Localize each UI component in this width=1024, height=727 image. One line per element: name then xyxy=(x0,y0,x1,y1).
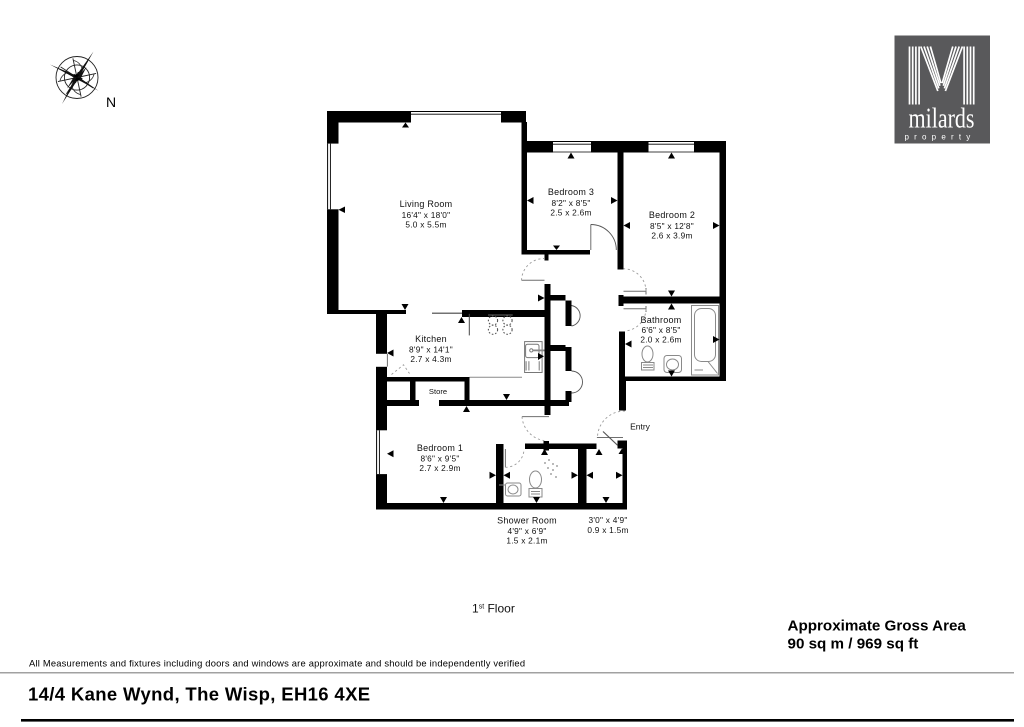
svg-text:2.7 x 4.3m: 2.7 x 4.3m xyxy=(410,354,451,364)
svg-text:2.0 x 2.6m: 2.0 x 2.6m xyxy=(640,335,681,345)
svg-text:Entry: Entry xyxy=(630,422,651,432)
svg-text:8'2" x 8'5": 8'2" x 8'5" xyxy=(551,198,590,208)
svg-text:1st Floor: 1st Floor xyxy=(472,602,515,616)
svg-text:Approximate Gross Area: Approximate Gross Area xyxy=(788,618,967,635)
svg-text:N: N xyxy=(106,94,116,110)
svg-text:Living Room: Living Room xyxy=(400,199,453,209)
svg-text:2.6 x 3.9m: 2.6 x 3.9m xyxy=(651,231,692,241)
svg-text:8'6" x 9'5": 8'6" x 9'5" xyxy=(420,454,459,464)
svg-text:All Measurements and fixtures: All Measurements and fixtures including … xyxy=(29,658,525,669)
svg-text:16'4" x 18'0": 16'4" x 18'0" xyxy=(402,210,451,220)
svg-text:Bathroom: Bathroom xyxy=(640,315,681,325)
svg-text:Store: Store xyxy=(429,387,447,396)
svg-text:90 sq m / 969 sq ft: 90 sq m / 969 sq ft xyxy=(788,635,919,652)
svg-text:0.9 x 1.5m: 0.9 x 1.5m xyxy=(587,525,628,535)
svg-text:5.0 x 5.5m: 5.0 x 5.5m xyxy=(405,220,446,230)
svg-text:4'9" x 6'9": 4'9" x 6'9" xyxy=(507,526,546,536)
svg-text:Bedroom 1: Bedroom 1 xyxy=(417,443,463,453)
svg-text:Bedroom 3: Bedroom 3 xyxy=(548,187,594,197)
svg-text:1.5 x 2.1m: 1.5 x 2.1m xyxy=(506,536,547,546)
svg-text:2.5 x 2.6m: 2.5 x 2.6m xyxy=(550,208,591,218)
svg-text:8'9" x 14'1": 8'9" x 14'1" xyxy=(409,345,453,355)
svg-text:3'0" x 4'9": 3'0" x 4'9" xyxy=(588,515,627,525)
svg-text:milards: milards xyxy=(909,103,975,134)
svg-text:Kitchen: Kitchen xyxy=(415,334,447,344)
svg-text:property: property xyxy=(905,133,976,142)
svg-text:6'6" x 8'5": 6'6" x 8'5" xyxy=(641,325,680,335)
svg-text:8'5" x 12'8": 8'5" x 12'8" xyxy=(650,221,694,231)
svg-text:14/4 Kane Wynd, The Wisp, EH16: 14/4 Kane Wynd, The Wisp, EH16 4XE xyxy=(28,684,370,705)
svg-text:Shower Room: Shower Room xyxy=(497,516,557,526)
svg-text:Bedroom 2: Bedroom 2 xyxy=(649,210,695,220)
svg-text:2.7 x 2.9m: 2.7 x 2.9m xyxy=(419,463,460,473)
